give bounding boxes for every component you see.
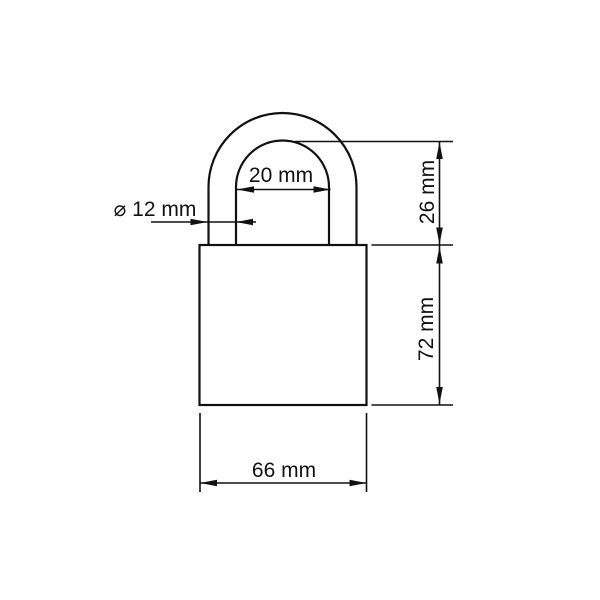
shackle-inner-outline [236,141,329,247]
arrowhead-down-icon [436,228,443,245]
drawing-canvas: 20 mm ⌀ 12 mm 26 mm 72 mm [0,0,600,600]
dim-shackle-diameter: ⌀ 12 mm [114,198,256,225]
dim-label-body-width: 66 mm [252,459,316,482]
padlock-technical-drawing: 20 mm ⌀ 12 mm 26 mm 72 mm [0,0,600,600]
dim-body-width: 66 mm [200,413,367,492]
dim-shackle-inner-width: 20 mm [237,164,331,193]
arrowhead-right-icon [350,480,367,487]
dim-body-height: 72 mm [372,245,454,405]
arrowhead-up-icon [436,247,443,264]
dim-label-shackle-inner-width: 20 mm [249,164,313,187]
arrowhead-left-icon [236,219,253,226]
dim-label-shackle-height: 26 mm [416,160,439,224]
padlock-outline [200,113,367,405]
arrowhead-up-icon [436,142,443,159]
dim-label-body-height: 72 mm [415,297,438,361]
arrowhead-left-icon [200,480,217,487]
dim-label-shackle-diameter: ⌀ 12 mm [114,198,197,221]
padlock-body [200,245,367,405]
arrowhead-left-icon [237,186,254,193]
arrowhead-down-icon [436,387,443,404]
